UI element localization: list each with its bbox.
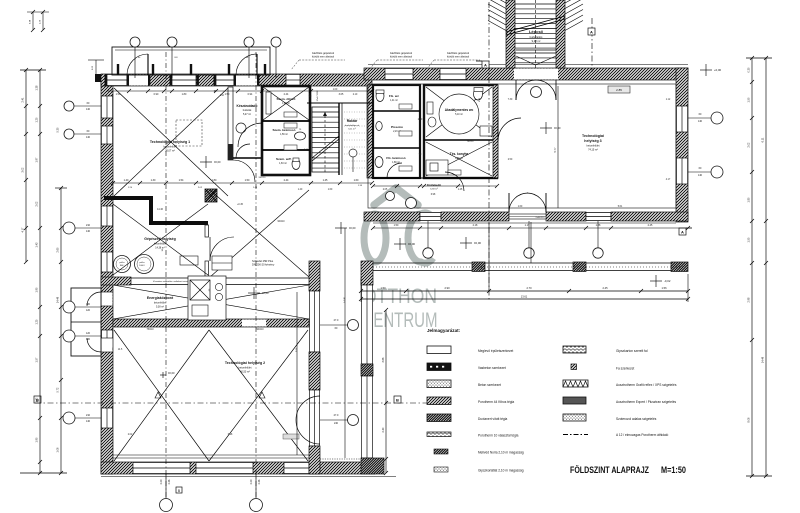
svg-text:Schiedel 25R Plus: Schiedel 25R Plus (252, 259, 274, 263)
svg-text:1000 l: 1000 l (139, 265, 145, 267)
svg-text:Lépcső: Lépcső (529, 29, 544, 34)
svg-text:14.46: 14.46 (762, 356, 765, 363)
svg-text:140: 140 (86, 230, 91, 233)
svg-text:betonfelület: betonfelület (154, 302, 167, 305)
svg-text:2.44: 2.44 (284, 179, 289, 182)
svg-text:FG. wc: FG. wc (389, 94, 399, 98)
svg-text:14.46: 14.46 (57, 296, 60, 303)
svg-text:1,59 m²: 1,59 m² (280, 133, 288, 136)
svg-text:1.50: 1.50 (225, 93, 230, 96)
svg-text:Mellvéd Norla 2,10 m magasság: Mellvéd Norla 2,10 m magasság (478, 451, 524, 455)
svg-text:Technológiai: Technológiai (582, 134, 604, 138)
svg-text:Pissoire: Pissoire (391, 125, 403, 129)
svg-text:5.72: 5.72 (57, 387, 60, 392)
svg-text:120: 120 (86, 332, 91, 335)
svg-text:Duvianert vított tégla: Duvianert vított tégla (478, 417, 507, 421)
svg-text:±0,00: ±0,00 (474, 241, 481, 245)
svg-text:1.40: 1.40 (124, 179, 129, 182)
svg-text:1.40: 1.40 (298, 189, 303, 191)
svg-text:2.50: 2.50 (508, 159, 513, 161)
svg-text:1.17: 1.17 (525, 224, 530, 227)
svg-text:1.45: 1.45 (323, 179, 328, 182)
svg-text:6.11: 6.11 (762, 137, 765, 142)
svg-text:Gázfűtés gépészeti: Gázfűtés gépészeti (447, 51, 470, 55)
svg-text:Gipszkorlátlat 2,10 m magasság: Gipszkorlátlat 2,10 m magasság (478, 469, 524, 473)
svg-text:2.90: 2.90 (444, 286, 450, 290)
svg-text:6,58 m²: 6,58 m² (430, 188, 438, 191)
svg-text:17x17.6/28: 17x17.6/28 (317, 90, 319, 102)
svg-text:1.12: 1.12 (666, 99, 671, 101)
svg-text:1.50: 1.50 (245, 179, 250, 182)
svg-text:Gázfűtés gépészeti: Gázfűtés gépészeti (312, 51, 335, 55)
svg-text:Energiaközpont: Energiaközpont (147, 296, 174, 300)
svg-text:±0,00: ±0,00 (262, 291, 269, 295)
svg-text:2.10: 2.10 (418, 119, 423, 121)
svg-text:Közlekedő: Közlekedő (427, 183, 441, 187)
svg-text:betonfelület: betonfelület (164, 146, 177, 149)
svg-text:Jelmagyarázat:: Jelmagyarázat: (427, 328, 461, 333)
svg-text:2.05: 2.05 (383, 189, 388, 191)
svg-text:+0,00: +0,00 (714, 68, 722, 72)
svg-text:1.80: 1.80 (182, 93, 187, 96)
svg-text:210: 210 (86, 224, 91, 227)
svg-text:kürtőit nem ábrázol: kürtőit nem ábrázol (312, 55, 334, 59)
svg-text:1.57: 1.57 (36, 357, 39, 362)
svg-text:2.36: 2.36 (168, 479, 171, 484)
svg-text:2.02: 2.02 (36, 201, 39, 206)
svg-text:±0,00: ±0,00 (349, 226, 356, 230)
svg-text:puffer: puffer (139, 262, 144, 264)
svg-text:1.06: 1.06 (57, 447, 60, 452)
svg-text:2.36: 2.36 (258, 479, 261, 484)
svg-text:A: A (681, 230, 684, 235)
svg-text:1.50: 1.50 (394, 224, 399, 227)
svg-text:1,41 m²: 1,41 m² (390, 99, 398, 102)
svg-text:A 12 / elmozagas Porotherm áth: A 12 / elmozagas Porotherm áthidaló (616, 433, 668, 437)
svg-text:Szoterozol adalas szigetelés: Szoterozol adalas szigetelés (616, 417, 657, 421)
svg-text:burkolatlépcső: burkolatlépcső (345, 124, 360, 127)
svg-text:14.46: 14.46 (157, 209, 163, 211)
svg-text:2.02: 2.02 (748, 142, 751, 147)
svg-text:Ausztrotherm Grafit reflex / X: Ausztrotherm Grafit reflex / XPS szigete… (616, 383, 677, 387)
svg-text:FG. kézmosó: FG. kézmosó (386, 156, 405, 160)
svg-text:Ausztrotherm Expert / Plusztra: Ausztrotherm Expert / Plusztran szigetel… (616, 400, 676, 404)
svg-text:-0,02: -0,02 (664, 279, 671, 283)
svg-text:60,53 m²: 60,53 m² (240, 371, 250, 374)
svg-text:75/210: 75/210 (467, 141, 474, 143)
svg-text:Fa szerkezet: Fa szerkezet (616, 367, 634, 371)
svg-text:3.02: 3.02 (22, 167, 25, 172)
svg-text:1.20: 1.20 (36, 117, 39, 122)
svg-text:Tés. konyha: Tés. konyha (450, 152, 469, 156)
svg-text:27.0: 27.0 (334, 414, 339, 417)
svg-text:A: A (590, 30, 593, 35)
svg-text:Vasbeton szerkezet: Vasbeton szerkezet (478, 366, 506, 370)
svg-text:5.61: 5.61 (618, 206, 623, 208)
svg-text:Porotherm 44 Kthos tégla: Porotherm 44 Kthos tégla (478, 400, 514, 404)
svg-text:1.45: 1.45 (458, 189, 463, 191)
svg-text:1.43: 1.43 (36, 242, 39, 247)
svg-text:2.44: 2.44 (284, 93, 289, 96)
svg-text:2.02: 2.02 (128, 434, 133, 436)
svg-text:5,38 m²: 5,38 m² (156, 306, 164, 309)
svg-text:A: A (484, 63, 487, 68)
svg-text:6.98: 6.98 (228, 434, 233, 436)
svg-text:FÖLDSZINT ALAPRAJZ: FÖLDSZINT ALAPRAJZ (570, 465, 649, 476)
svg-text:2.60: 2.60 (57, 247, 60, 252)
svg-text:±0,00: ±0,00 (214, 160, 221, 164)
svg-text:1.28: 1.28 (596, 224, 601, 227)
svg-text:90/210: 90/210 (259, 177, 266, 179)
svg-text:1.90: 1.90 (36, 287, 39, 292)
svg-text:betonfelület: betonfelület (239, 367, 252, 370)
svg-text:1.60: 1.60 (518, 206, 523, 208)
svg-text:14.97: 14.97 (432, 69, 438, 71)
svg-text:0.94: 0.94 (248, 93, 253, 96)
svg-text:1.80: 1.80 (748, 197, 751, 202)
svg-text:1.25: 1.25 (36, 319, 39, 324)
svg-text:Beton szerkezet: Beton szerkezet (478, 383, 501, 387)
svg-text:Porotherm 10 válaszfal tégla: Porotherm 10 válaszfal tégla (478, 434, 519, 438)
svg-text:240: 240 (334, 422, 339, 425)
svg-text:27.0: 27.0 (334, 319, 339, 322)
svg-text:Raktár: Raktár (347, 119, 358, 123)
svg-text:Gázfűtés gépészeti: Gázfűtés gépészeti (390, 51, 413, 55)
svg-text:1.60: 1.60 (354, 179, 359, 182)
svg-text:Szem. öltöző: Szem. öltöző (277, 97, 296, 101)
svg-text:90/210: 90/210 (427, 85, 434, 87)
svg-text:1.30: 1.30 (151, 179, 156, 182)
svg-text:140: 140 (86, 420, 91, 423)
svg-text:14.46: 14.46 (344, 296, 346, 302)
svg-text:2.18: 2.18 (473, 224, 478, 227)
svg-text:5.30: 5.30 (57, 127, 60, 132)
svg-text:4,56 m²: 4,56 m² (455, 157, 463, 160)
svg-text:1.50: 1.50 (380, 286, 386, 290)
svg-text:5,27 m²: 5,27 m² (243, 113, 251, 116)
svg-text:5.77: 5.77 (553, 147, 557, 153)
svg-text:7.30: 7.30 (508, 99, 513, 101)
svg-text:140: 140 (86, 108, 91, 111)
svg-text:1.80: 1.80 (212, 179, 217, 182)
svg-text:4.17: 4.17 (22, 227, 25, 232)
svg-text:Vízszintes szigetelés csatlako: Vízszintes szigetelés csatlakozó szivatt… (153, 280, 192, 283)
svg-text:9,28 m²: 9,28 m² (532, 39, 541, 43)
svg-text:1.00: 1.00 (333, 89, 338, 91)
svg-text:DN 200-20 kémény: DN 200-20 kémény (252, 263, 275, 267)
svg-text:±0,00: ±0,00 (554, 126, 561, 130)
svg-text:2.10: 2.10 (353, 94, 358, 96)
svg-text:2x90/210: 2x90/210 (535, 217, 545, 219)
svg-text:Technológiai helyiség 2: Technológiai helyiség 2 (225, 361, 265, 365)
svg-text:0.30: 0.30 (748, 67, 751, 72)
svg-text:kürtőit nem ábrázol: kürtőit nem ábrázol (390, 55, 412, 59)
svg-text:8.06: 8.06 (748, 417, 751, 422)
svg-text:4.17: 4.17 (666, 179, 671, 181)
svg-text:120: 120 (86, 309, 91, 312)
svg-text:burkolatlép: burkolatlép (530, 35, 543, 39)
svg-text:210: 210 (86, 414, 91, 417)
svg-text:1.56: 1.56 (661, 286, 667, 290)
svg-text:Meglevő épületszerkezet: Meglevő épületszerkezet (478, 349, 513, 353)
svg-text:2.98: 2.98 (748, 297, 751, 302)
svg-text:±0,00: ±0,00 (408, 242, 415, 246)
svg-text:puffer: puffer (119, 262, 124, 264)
svg-text:0.90: 0.90 (154, 93, 159, 96)
svg-text:1,63 m²: 1,63 m² (279, 162, 287, 165)
svg-text:120: 120 (86, 303, 91, 306)
svg-text:1.62: 1.62 (36, 397, 39, 402)
svg-text:1.54: 1.54 (179, 179, 184, 182)
svg-text:3.66: 3.66 (382, 357, 385, 362)
svg-text:120: 120 (86, 338, 91, 341)
svg-text:140: 140 (86, 136, 91, 139)
svg-text:1.50: 1.50 (116, 93, 121, 96)
svg-text:2.20: 2.20 (250, 479, 253, 484)
svg-text:90/210: 90/210 (277, 221, 285, 223)
svg-text:3.05: 3.05 (339, 93, 344, 96)
svg-text:36,07 m²: 36,07 m² (165, 150, 175, 153)
svg-text:6,11 m²: 6,11 m² (348, 128, 356, 131)
svg-text:helyiség 3: helyiség 3 (584, 139, 601, 143)
svg-text:1.97: 1.97 (36, 157, 39, 162)
svg-text:kürtőit nem ábrázol: kürtőit nem ábrázol (447, 55, 469, 59)
svg-text:90/210: 90/210 (256, 329, 264, 331)
svg-text:13.61: 13.61 (521, 295, 528, 299)
svg-text:2.70: 2.70 (526, 286, 532, 290)
svg-text:M=1:50: M=1:50 (661, 465, 686, 476)
svg-text:2.20: 2.20 (160, 479, 163, 484)
svg-text:Akadálymentes wc: Akadálymentes wc (445, 108, 474, 112)
svg-text:140: 140 (698, 174, 703, 177)
svg-text:2.45: 2.45 (648, 224, 653, 227)
svg-text:Készáruátadó: Készáruátadó (237, 104, 258, 108)
svg-text:Technológiai helyiség 1: Technológiai helyiség 1 (150, 140, 190, 144)
svg-text:1.90: 1.90 (36, 437, 39, 442)
svg-text:+0.45: +0.45 (237, 204, 244, 206)
svg-text:2.40: 2.40 (382, 427, 385, 432)
svg-text:1.38: 1.38 (36, 85, 39, 90)
svg-text:6.98: 6.98 (431, 194, 436, 196)
svg-text:1,93 m²: 1,93 m² (282, 102, 290, 105)
svg-text:2.41: 2.41 (22, 97, 25, 102)
svg-text:75/210: 75/210 (146, 329, 154, 331)
svg-text:1.50: 1.50 (748, 97, 751, 102)
svg-text:14.5: 14.5 (118, 349, 123, 351)
svg-text:74,15 m²: 74,15 m² (588, 149, 598, 152)
svg-text:betonfelület: betonfelület (587, 145, 600, 148)
svg-text:5,10 m²: 5,10 m² (455, 113, 463, 116)
svg-text:1.60: 1.60 (328, 189, 333, 191)
svg-text:Szem. kézmosó: Szem. kézmosó (272, 128, 295, 132)
svg-text:burkolat: burkolat (243, 109, 252, 112)
svg-text:B: B (396, 398, 399, 403)
svg-text:2.45: 2.45 (602, 286, 608, 290)
svg-text:OTTHON: OTTHON (363, 285, 437, 308)
svg-text:±0,00: ±0,00 (168, 371, 175, 375)
svg-text:Gipszkarton szerelt fal: Gipszkarton szerelt fal (616, 349, 648, 353)
svg-text:2.85: 2.85 (616, 88, 622, 92)
svg-text:140: 140 (698, 120, 703, 123)
svg-text:1.55: 1.55 (748, 237, 751, 242)
